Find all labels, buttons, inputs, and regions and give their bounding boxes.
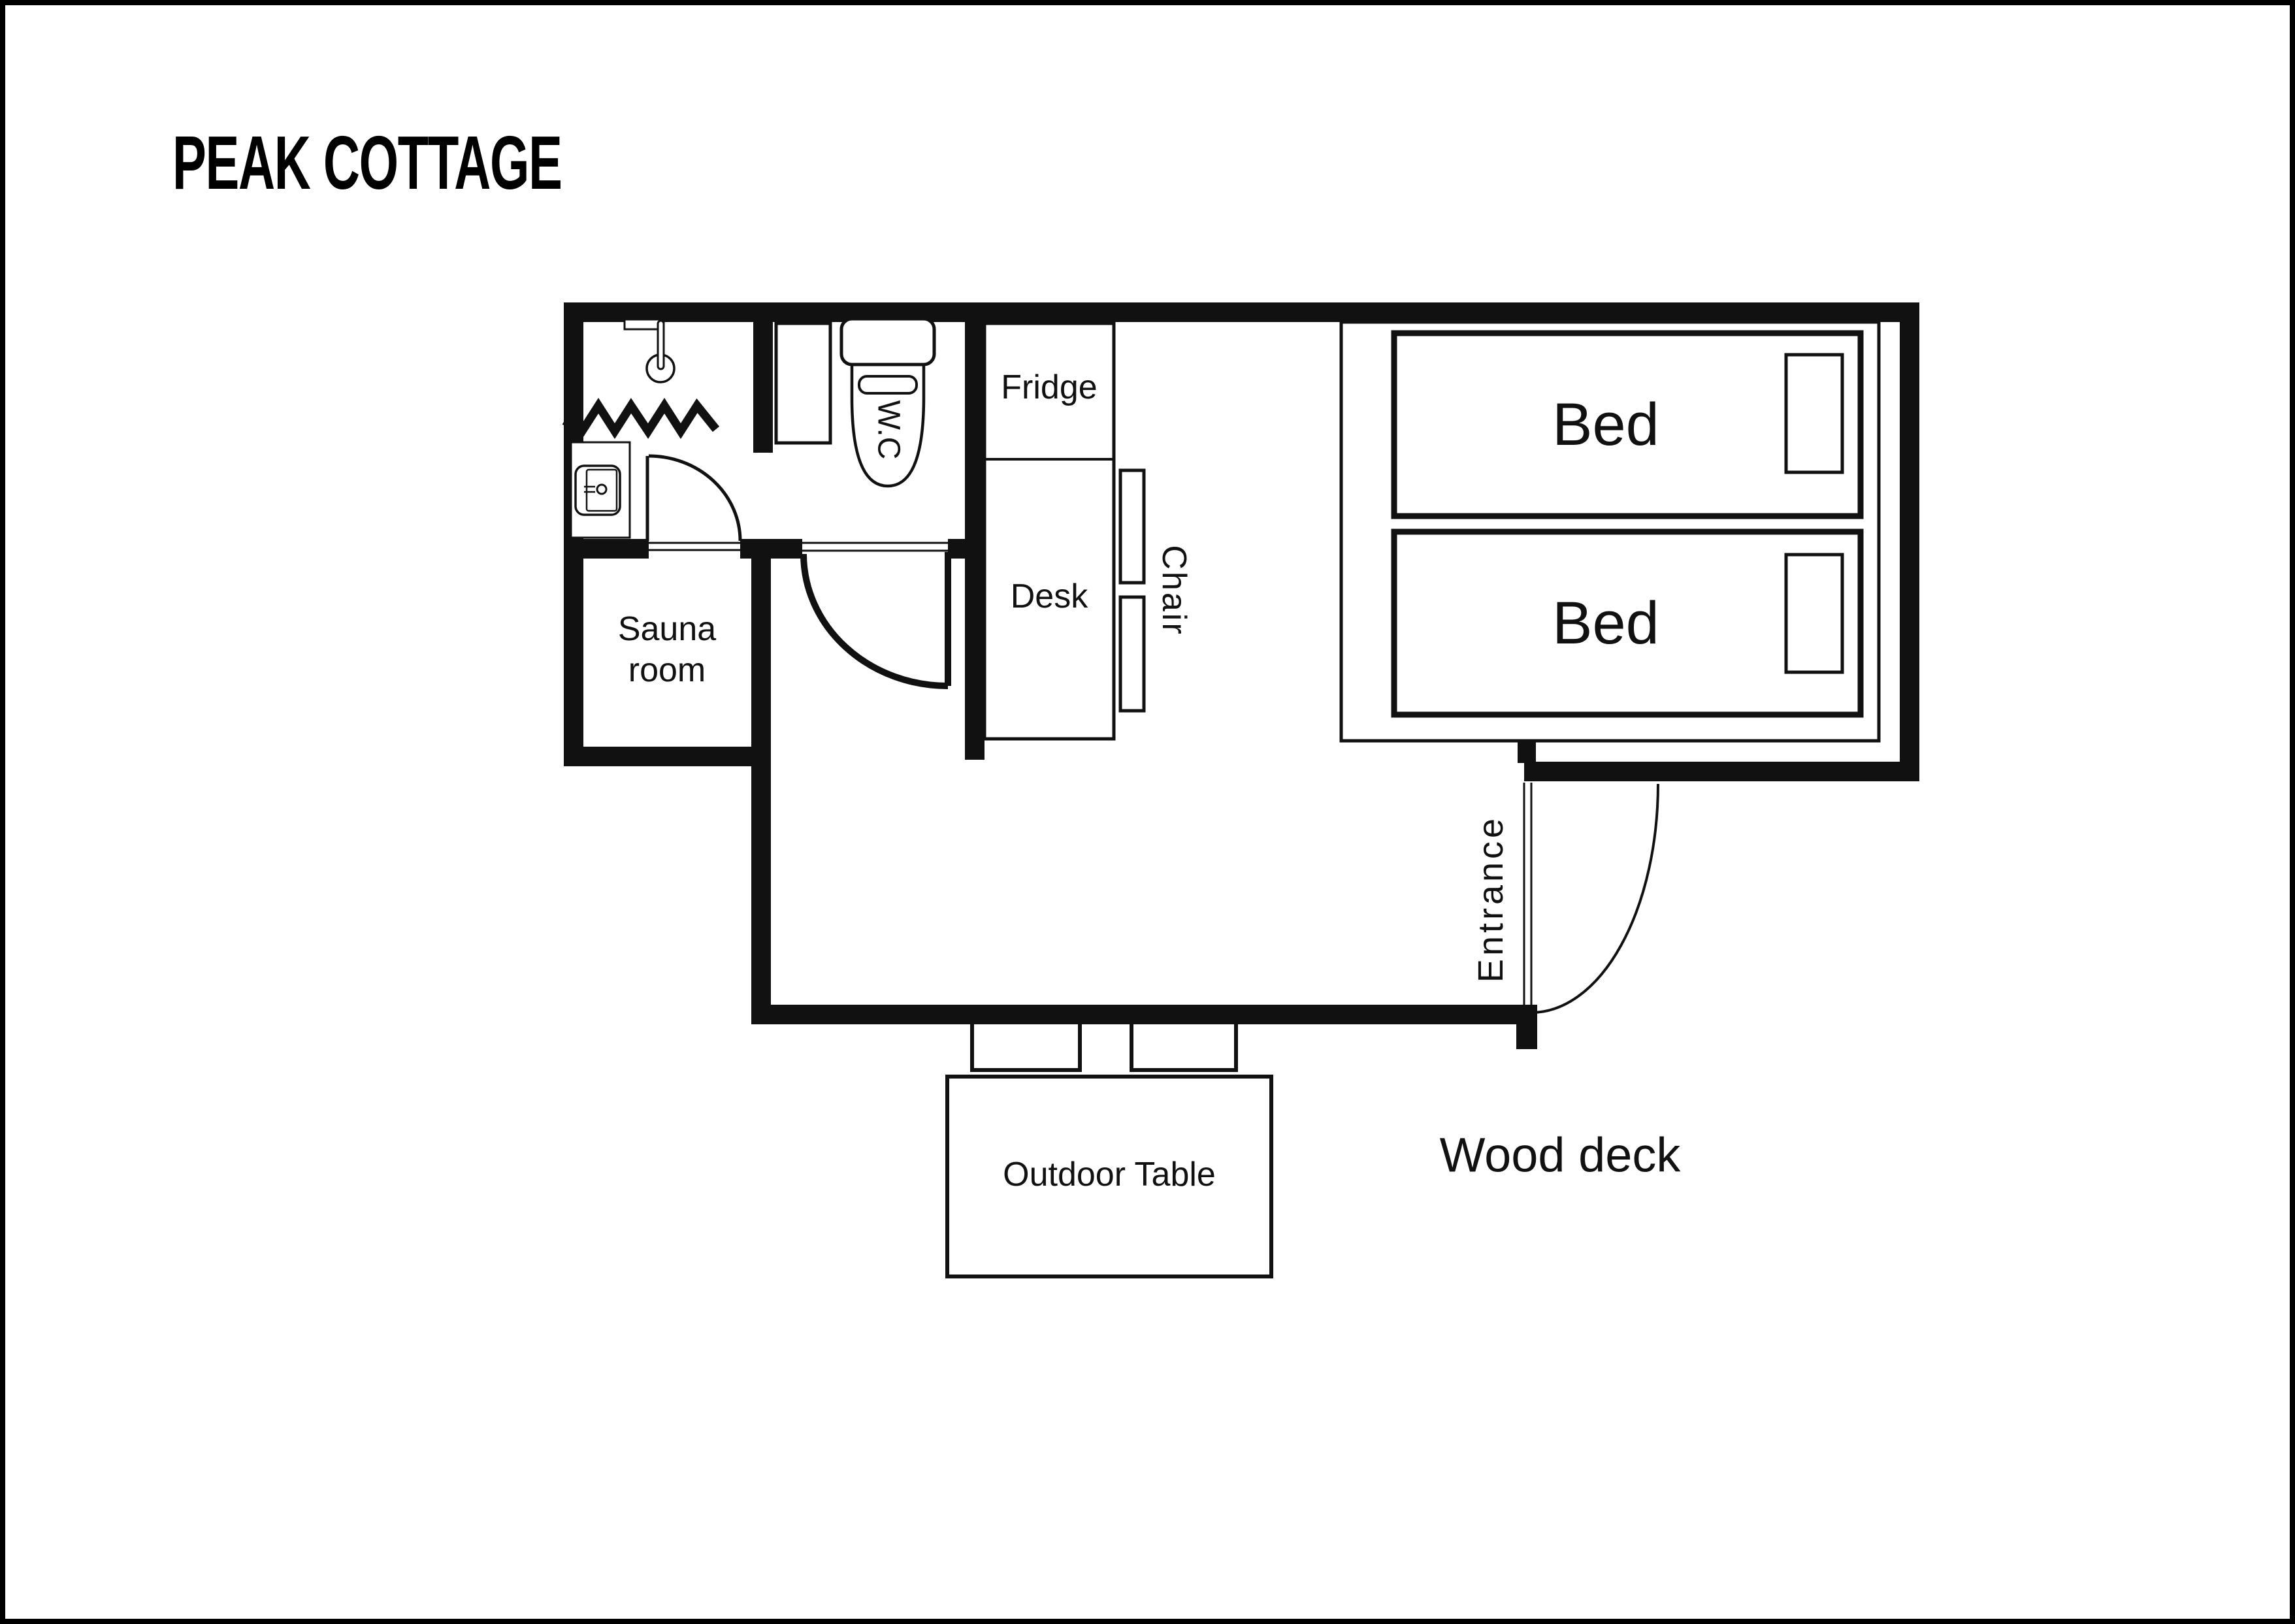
outdoor-table: Outdoor Table [947,1077,1271,1276]
entrance-door [1524,783,1658,1013]
wall-bedroom-south [1524,762,1919,781]
wc-shelf [776,323,830,443]
outdoor-chair-1 [972,1022,1080,1070]
toilet-tank [841,319,934,365]
wall-right [1900,302,1919,781]
wood-deck-label: Wood deck [1440,1128,1682,1182]
wall-kitchen-west [965,302,985,760]
chair-2 [1120,597,1144,711]
entrance-door-swing-arc [1531,784,1658,1013]
fridge-desk-unit: Fridge Desk [985,323,1114,739]
bed-area: Bed Bed [1341,322,1879,741]
fridge-label: Fridge [1001,368,1097,406]
shower-screen-zigzag [564,406,716,431]
desk-label: Desk [1011,577,1088,615]
wall-sauna-south [564,747,771,766]
wall-bath-south-right [948,539,985,559]
wc-label: W.C [871,400,906,460]
shower-door-swing-arc [649,456,740,541]
floor-plan: W.C Sauna room Fridge Desk Chair Bed [5,5,2295,1624]
wall-shower-east [753,302,773,453]
toilet-seat [859,376,917,393]
outdoor-table-label: Outdoor Table [1003,1156,1216,1194]
outdoor-chair-2 [1131,1022,1236,1070]
shower-head-icon [625,319,674,382]
bathroom-door-swing-arc [804,554,948,686]
chair-1 [1120,470,1144,583]
page: PEAK COTTAGE [0,0,2295,1624]
bathroom-door [802,543,948,686]
chair-label: Chair [1155,545,1193,636]
shower-door [647,456,740,550]
wall-bath-south-mid [740,539,802,559]
wall-bath-south-left [564,539,649,559]
wall-corridor-west [751,539,771,1024]
bed-1-label: Bed [1552,391,1659,458]
bed-2-label: Bed [1552,590,1659,657]
pillow-2-icon [1786,555,1842,672]
sink-icon [571,442,630,538]
sauna-room-label-line2: room [628,651,706,689]
pillow-1-icon [1786,355,1842,472]
toilet-icon: W.C [841,319,934,486]
entrance-label: Entrance [1471,815,1510,983]
sauna-room-label-line1: Sauna [618,610,716,648]
